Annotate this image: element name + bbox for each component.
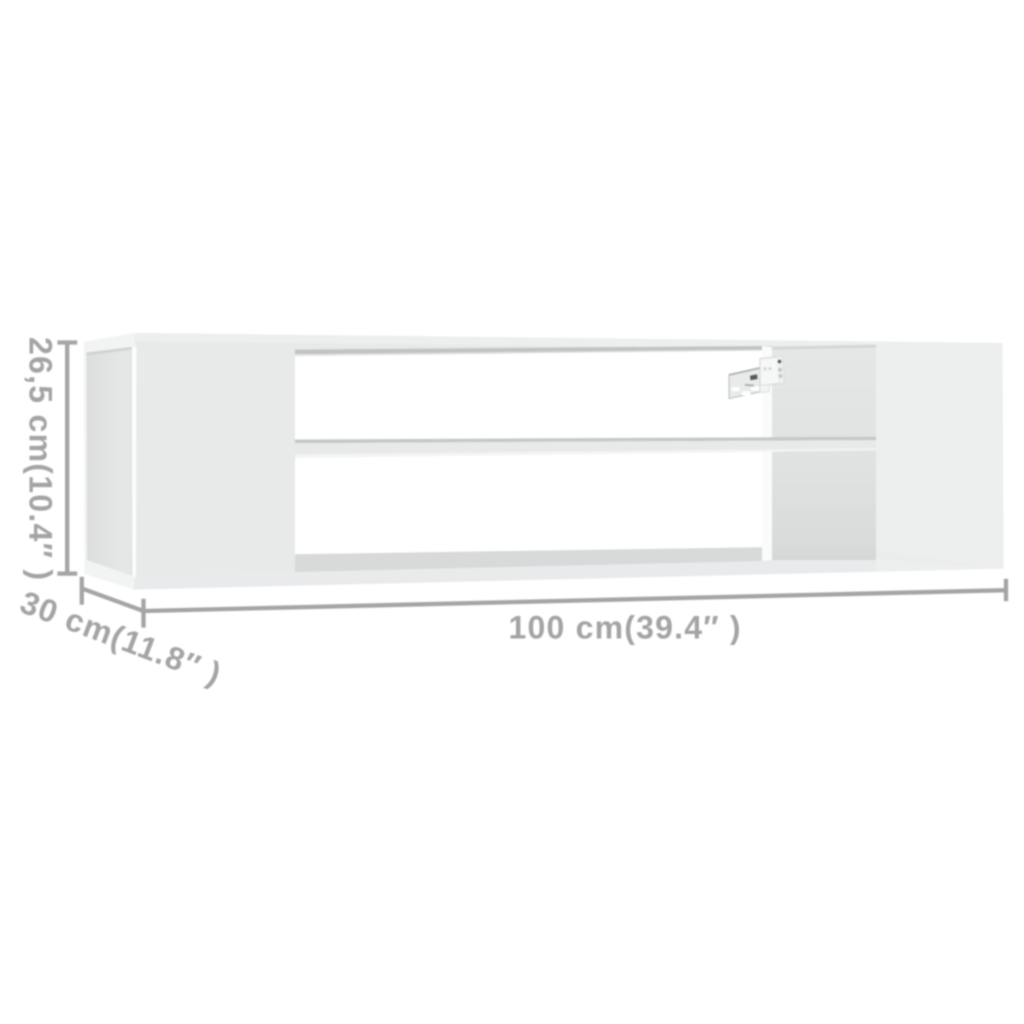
svg-text:100 cm(39.4″ ): 100 cm(39.4″ ) <box>509 610 741 646</box>
svg-text:26,5 cm(10.4″ ): 26,5 cm(10.4″ ) <box>23 337 59 580</box>
